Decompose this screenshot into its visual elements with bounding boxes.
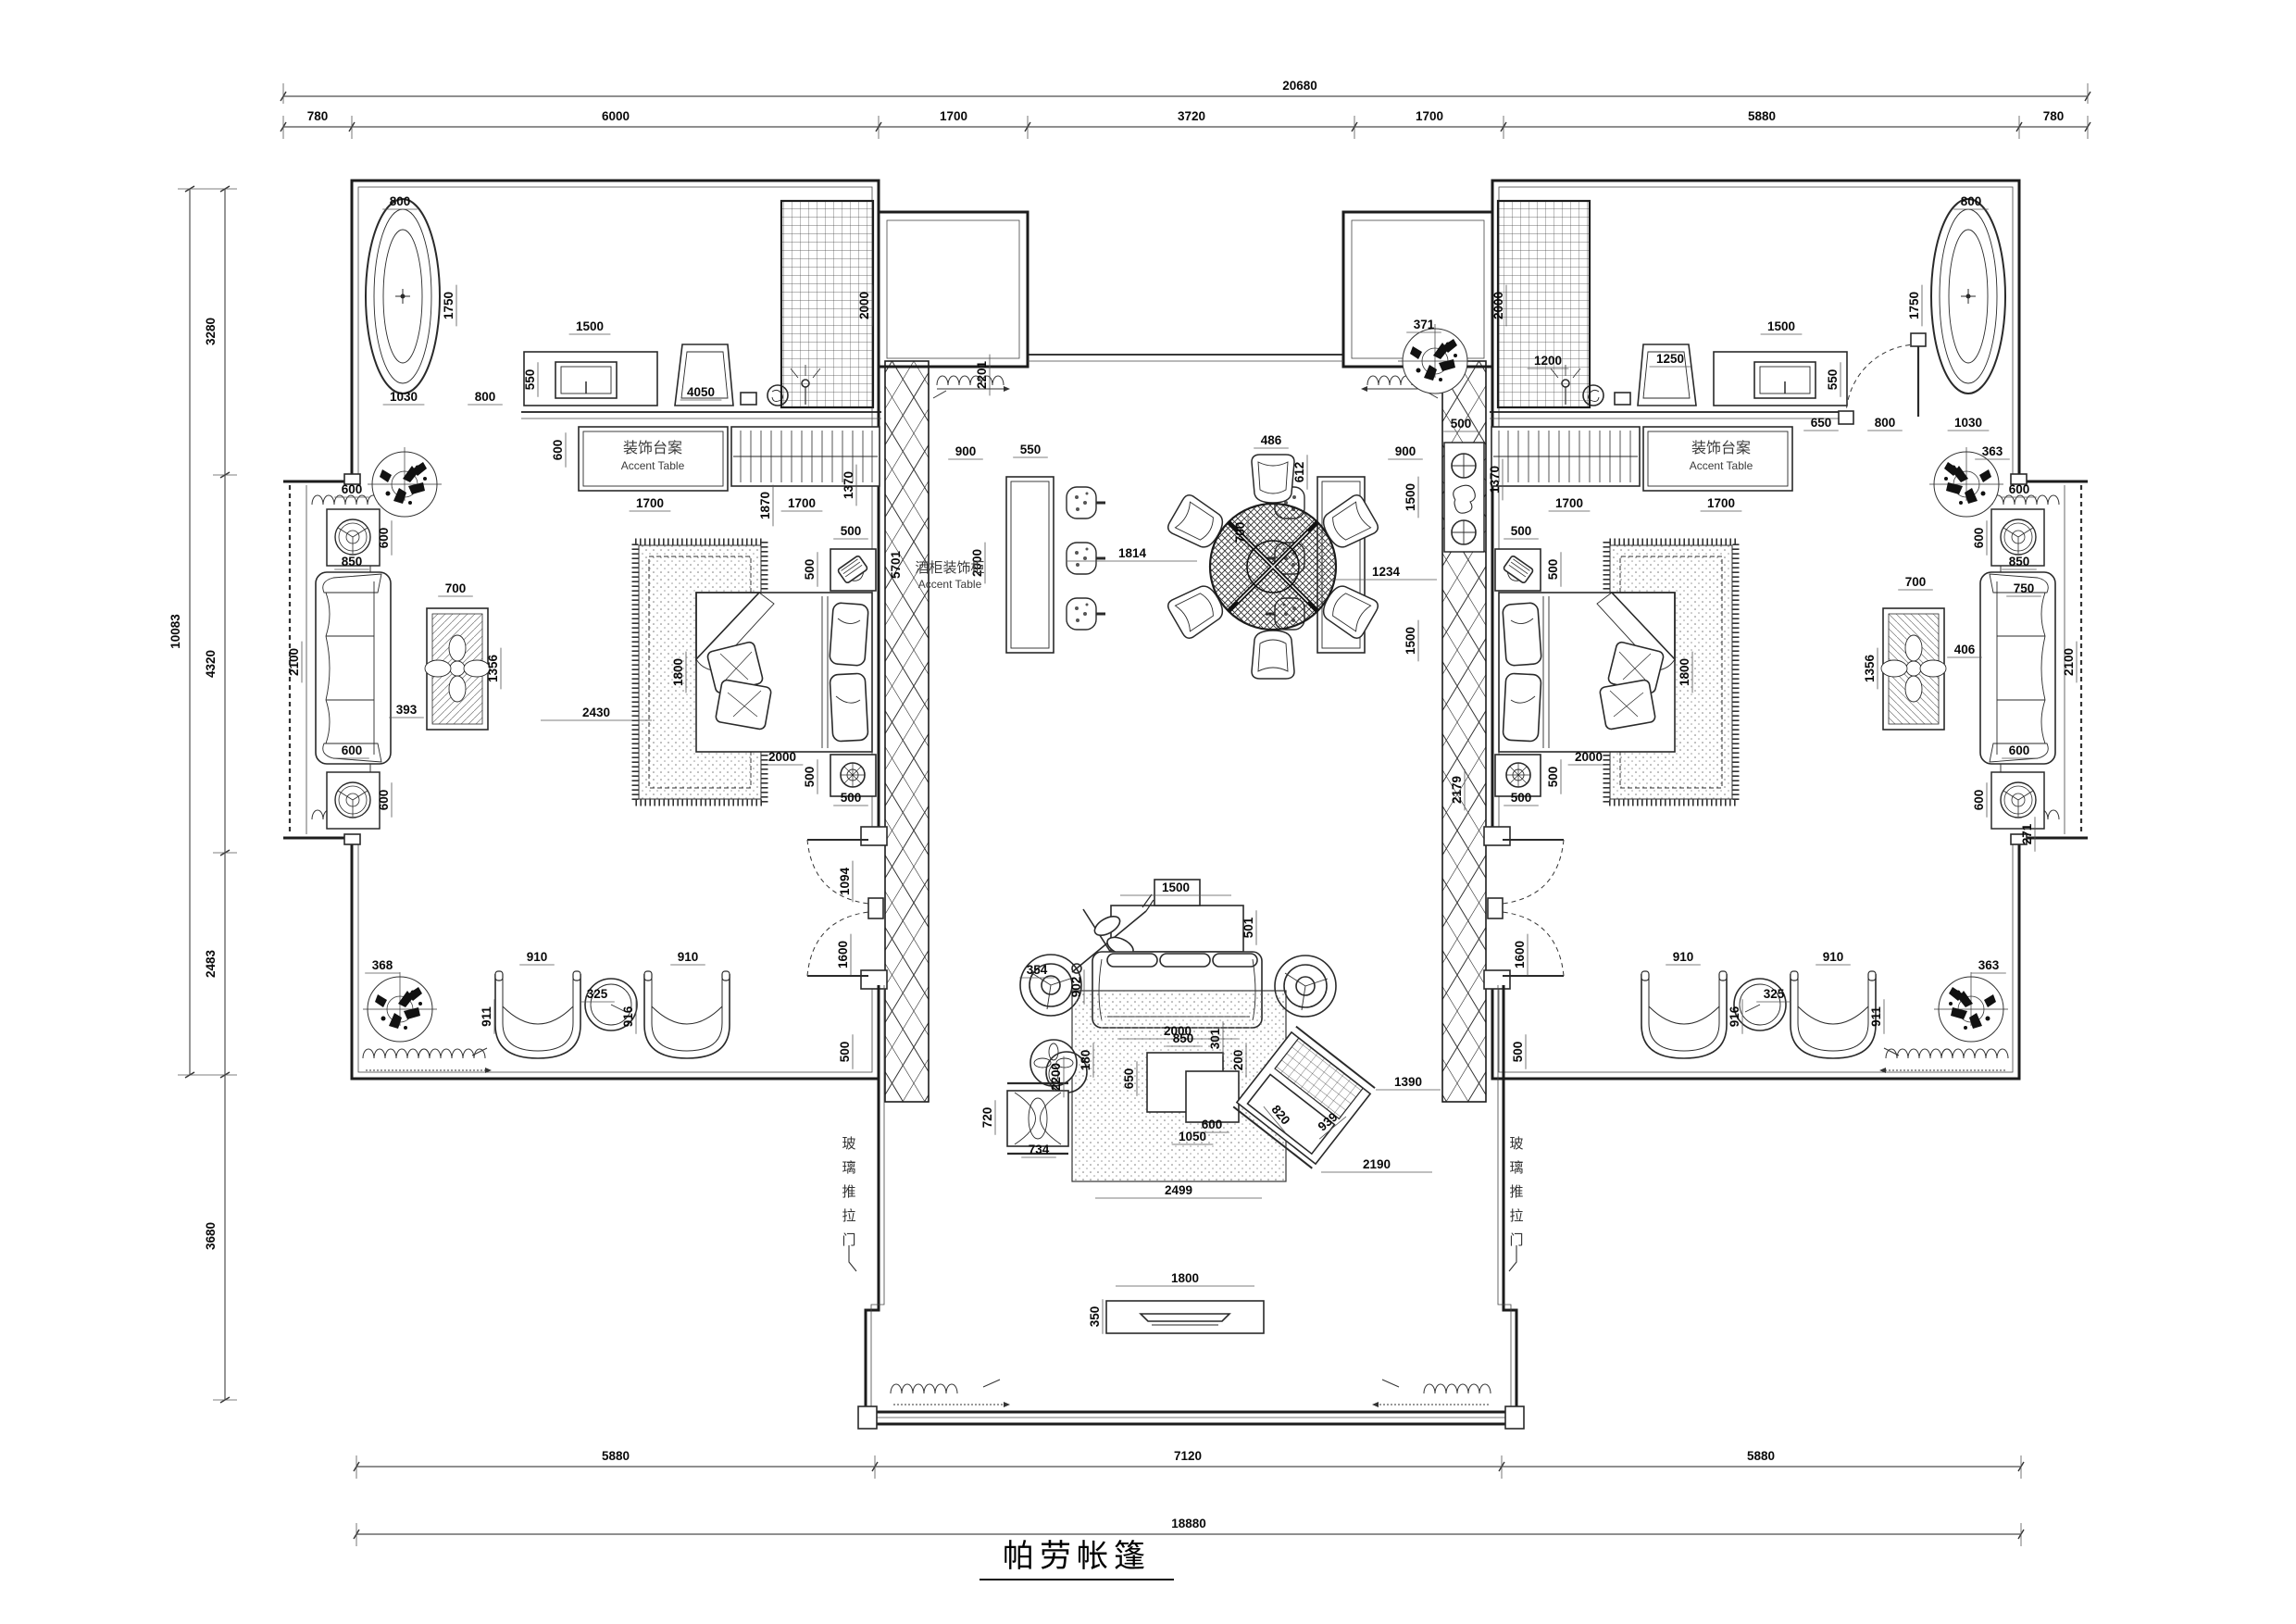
svg-text:368: 368 [372, 958, 393, 972]
bath-plant [368, 447, 442, 517]
svg-text:550: 550 [1826, 369, 1840, 391]
dim-label: 1700 [1701, 496, 1742, 511]
dim-label: 5880 [1747, 1449, 1775, 1463]
pillow [830, 603, 869, 666]
dim-label: 1700 [630, 496, 671, 511]
svg-text:1800: 1800 [1678, 658, 1691, 686]
svg-text:500: 500 [841, 791, 862, 805]
svg-text:406: 406 [1954, 643, 1976, 656]
svg-text:1800: 1800 [671, 658, 685, 686]
svg-text:600: 600 [2009, 743, 2030, 757]
dim-label: 5880 [1748, 109, 1776, 123]
dim-label: 3280 [204, 318, 218, 345]
dim-label: 1600 [836, 934, 851, 976]
svg-text:371: 371 [1414, 318, 1435, 331]
svg-text:1500: 1500 [1162, 881, 1190, 894]
svg-text:1200: 1200 [1534, 354, 1562, 368]
svg-text:500: 500 [1511, 524, 1532, 538]
svg-text:5880: 5880 [1748, 109, 1776, 123]
svg-text:500: 500 [838, 1042, 852, 1063]
svg-text:1700: 1700 [636, 496, 664, 510]
lower-plant [363, 972, 437, 1042]
svg-text:916: 916 [621, 1006, 635, 1027]
svg-text:393: 393 [396, 703, 418, 717]
svg-text:900: 900 [955, 444, 977, 458]
dim-label: 1500 [569, 319, 611, 334]
svg-text:550: 550 [523, 369, 537, 391]
dim-label: 2499 [1095, 1183, 1262, 1198]
svg-text:363: 363 [1978, 958, 2000, 972]
dim-label: 10083 [168, 614, 182, 649]
room-label: Accent Table [1690, 459, 1753, 472]
svg-text:1050: 1050 [1179, 1130, 1206, 1143]
svg-text:2100: 2100 [2062, 648, 2076, 676]
svg-text:500: 500 [1546, 767, 1560, 788]
svg-text:500: 500 [803, 559, 817, 581]
dim-label: 1500 [1404, 620, 1418, 662]
room-label: Accent Table [621, 459, 685, 472]
right-bath-door [1839, 333, 1926, 424]
svg-text:1030: 1030 [390, 390, 418, 404]
dim-label: 1750 [1907, 285, 1922, 327]
dim-label: 1030 [1948, 416, 1990, 431]
glass-sliding-door-label: 玻 [842, 1136, 855, 1152]
svg-text:2000: 2000 [1575, 750, 1603, 764]
glass-sliding-door-label: 璃 [842, 1160, 855, 1176]
svg-text:486: 486 [1261, 433, 1282, 447]
svg-text:700: 700 [1905, 575, 1927, 589]
svg-text:1600: 1600 [836, 941, 850, 968]
glass-door-arrow-right [1509, 1245, 1516, 1271]
dim-label: 500 [803, 759, 817, 794]
svg-text:3280: 3280 [204, 318, 218, 345]
side-table-bottom [327, 772, 380, 829]
dim-label: 20680 [1282, 79, 1317, 93]
hall-console [1106, 1301, 1264, 1333]
svg-text:2100: 2100 [287, 648, 301, 676]
svg-text:720: 720 [980, 1107, 994, 1129]
svg-text:354: 354 [1027, 963, 1048, 977]
dim-label: 18880 [1171, 1517, 1206, 1530]
svg-text:5880: 5880 [1747, 1449, 1775, 1463]
svg-text:2499: 2499 [1165, 1183, 1192, 1197]
dim-label: 1750 [442, 285, 456, 327]
dim-label: 1700 [940, 109, 967, 123]
hall-bottom-wall [866, 1412, 1516, 1424]
glass-sliding-door-label: 拉 [842, 1208, 855, 1224]
sink-symbol [1454, 485, 1476, 513]
dim-label: 2201 [975, 355, 990, 396]
svg-text:1700: 1700 [940, 109, 967, 123]
dim-label: 1390 [1376, 1075, 1441, 1090]
svg-text:550: 550 [1020, 443, 1042, 456]
dim-label: 1700 [1416, 109, 1443, 123]
svg-text:2179: 2179 [1450, 776, 1464, 804]
svg-text:911: 911 [480, 1006, 493, 1027]
svg-text:325: 325 [587, 987, 608, 1001]
svg-text:1700: 1700 [1555, 496, 1583, 510]
svg-text:301: 301 [1208, 1028, 1222, 1049]
svg-text:2190: 2190 [1363, 1157, 1391, 1171]
dim-label: 600 [1972, 520, 1987, 556]
dim-label: 500 [1546, 759, 1561, 794]
svg-text:5880: 5880 [602, 1449, 630, 1463]
svg-text:600: 600 [1972, 790, 1986, 811]
vanity-console [524, 352, 657, 406]
dim-label: 1700 [1549, 496, 1591, 511]
dim-label: 1500 [1761, 319, 1803, 334]
svg-text:2483: 2483 [204, 949, 218, 978]
svg-text:5701: 5701 [889, 550, 903, 579]
svg-text:1500: 1500 [576, 319, 604, 333]
dim-label: 1870 [758, 485, 773, 527]
lower-curtain [363, 1048, 491, 1070]
glass-sliding-door-label: 玻 [1509, 1136, 1523, 1152]
dim-label: 368 [365, 958, 400, 973]
dim-label: 1700 [781, 496, 823, 511]
glass-sliding-door-label: 门 [1509, 1232, 1523, 1248]
svg-text:1500: 1500 [1404, 627, 1417, 655]
dim-label: 2483 [204, 949, 218, 978]
bay-sofa [316, 572, 391, 764]
glass-sliding-door-label: 璃 [1509, 1160, 1523, 1176]
svg-text:750: 750 [2014, 581, 2035, 595]
dim-label: 486 [1254, 433, 1289, 448]
svg-text:600: 600 [551, 440, 565, 461]
svg-text:2000: 2000 [1491, 292, 1505, 319]
svg-text:700: 700 [445, 581, 467, 595]
svg-text:200: 200 [1231, 1050, 1245, 1071]
svg-text:1700: 1700 [788, 496, 816, 510]
dim-label: 2430 [541, 706, 652, 720]
dim-label: 600 [551, 432, 566, 468]
dim-label: 800 [468, 390, 503, 405]
dim-label: 363 [1971, 958, 2006, 973]
dim-label: 500 [838, 1034, 853, 1069]
svg-text:350: 350 [1088, 1306, 1102, 1328]
svg-text:734: 734 [1029, 1143, 1050, 1156]
dim-label: 406 [1947, 643, 1982, 657]
glass-sliding-door-label: 推 [1509, 1184, 1523, 1200]
svg-text:500: 500 [1511, 791, 1532, 805]
dim-label: 910 [519, 950, 555, 965]
svg-text:500: 500 [1511, 1042, 1525, 1063]
svg-text:850: 850 [2009, 555, 2030, 568]
dim-label: 350 [1088, 1299, 1103, 1334]
bed [696, 593, 872, 752]
dim-label: 5701 [889, 550, 903, 579]
svg-text:780: 780 [2043, 109, 2065, 123]
svg-text:500: 500 [803, 767, 817, 788]
svg-text:18880: 18880 [1171, 1517, 1206, 1530]
dim-label: 910 [1816, 950, 1851, 965]
dim-label: 1094 [838, 861, 853, 903]
glass-sliding-door-label: 门 [842, 1232, 855, 1248]
dim-label: 911 [480, 999, 494, 1034]
svg-text:2200: 2200 [1049, 1063, 1063, 1091]
dim-label: 720 [980, 1100, 995, 1135]
dim-label: 500 [803, 552, 817, 587]
svg-text:180: 180 [1079, 1050, 1092, 1071]
svg-text:1800: 1800 [1171, 1271, 1199, 1285]
dim-label: 1600 [1513, 934, 1528, 976]
svg-text:902: 902 [1069, 977, 1083, 998]
dim-label: 910 [670, 950, 705, 965]
dim-label: 1500 [1404, 477, 1418, 518]
svg-text:600: 600 [377, 528, 391, 549]
svg-text:612: 612 [1292, 462, 1306, 483]
svg-text:600: 600 [377, 790, 391, 811]
room-label: 装饰台案 [1691, 440, 1751, 456]
svg-text:910: 910 [1823, 950, 1844, 964]
svg-text:1356: 1356 [486, 654, 500, 682]
dim-label: 1356 [1863, 648, 1878, 690]
svg-text:1600: 1600 [1513, 941, 1527, 968]
svg-text:780: 780 [307, 109, 329, 123]
glass-sliding-door-label: 推 [842, 1184, 855, 1200]
dim-label: 910 [1666, 950, 1701, 965]
svg-text:600: 600 [2009, 482, 2030, 496]
svg-text:1700: 1700 [1416, 109, 1443, 123]
svg-text:900: 900 [1395, 444, 1416, 458]
dim-label: 780 [307, 109, 329, 123]
dim-label: 500 [1511, 1034, 1526, 1069]
svg-text:850: 850 [1173, 1031, 1194, 1045]
svg-text:650: 650 [1122, 1068, 1136, 1090]
svg-text:325: 325 [1764, 987, 1785, 1001]
svg-text:1750: 1750 [1907, 292, 1921, 319]
svg-text:1250: 1250 [1656, 352, 1684, 366]
svg-text:800: 800 [475, 390, 496, 404]
dim-label: 393 [389, 703, 424, 718]
dim-label: 780 [2043, 109, 2065, 123]
room-label: 酒柜装饰柜 [915, 560, 984, 576]
svg-text:501: 501 [1242, 917, 1255, 938]
svg-text:500: 500 [1451, 417, 1472, 431]
svg-text:271: 271 [2020, 823, 2034, 844]
room-label: Accent Table [918, 578, 982, 591]
wine-cabinet-column [885, 361, 929, 1102]
dim-label: 4320 [204, 650, 218, 678]
right-column-symbols [1444, 443, 1484, 552]
svg-text:4320: 4320 [204, 650, 218, 678]
svg-text:2000: 2000 [857, 292, 871, 319]
svg-text:1814: 1814 [1118, 546, 1147, 560]
svg-text:4050: 4050 [687, 385, 715, 399]
dim-label: 2100 [2062, 642, 2077, 683]
svg-text:7120: 7120 [1174, 1449, 1202, 1463]
dim-label: 700 [1898, 575, 1933, 590]
floor-plan-svg: 2068078060001700372017005880780100833280… [0, 0, 2296, 1624]
top-closet [879, 212, 1028, 367]
svg-text:916: 916 [1728, 1006, 1741, 1027]
svg-text:1370: 1370 [842, 471, 855, 499]
svg-text:10083: 10083 [168, 614, 182, 649]
svg-text:500: 500 [841, 524, 862, 538]
dim-label: 7120 [1174, 1449, 1202, 1463]
svg-text:1870: 1870 [758, 492, 772, 519]
dim-label: 2190 [1321, 1157, 1432, 1172]
bathtub [366, 199, 440, 394]
svg-text:800: 800 [390, 194, 411, 208]
svg-text:600: 600 [1972, 528, 1986, 549]
svg-text:911: 911 [1869, 1006, 1883, 1027]
pillow [830, 673, 868, 742]
glass-sliding-door-label: 拉 [1509, 1208, 1523, 1224]
svg-text:1356: 1356 [1863, 654, 1877, 682]
dim-label: 1500 [1120, 881, 1231, 895]
dim-label: 650 [1803, 416, 1839, 431]
svg-text:650: 650 [1811, 416, 1832, 430]
bar-counter [1006, 477, 1054, 653]
dim-label: 500 [1546, 552, 1561, 587]
dim-label: 5880 [602, 1449, 630, 1463]
dim-label: 1030 [383, 390, 425, 405]
svg-text:600: 600 [342, 482, 363, 496]
svg-text:910: 910 [678, 950, 699, 964]
dim-label: 500 [1504, 524, 1539, 539]
svg-text:2430: 2430 [582, 706, 610, 719]
svg-text:800: 800 [1961, 194, 1982, 208]
svg-text:363: 363 [1982, 444, 2003, 458]
svg-text:3720: 3720 [1178, 109, 1205, 123]
svg-text:2000: 2000 [768, 750, 796, 764]
dim-label: 3680 [204, 1222, 218, 1250]
bay-coffee-table [425, 608, 490, 730]
svg-text:1234: 1234 [1372, 565, 1401, 579]
svg-text:1750: 1750 [442, 292, 455, 319]
svg-text:800: 800 [1875, 416, 1896, 430]
svg-text:1700: 1700 [1707, 496, 1735, 510]
svg-text:500: 500 [1546, 559, 1560, 581]
room-label: 装饰台案 [623, 440, 682, 456]
dim-label: 900 [948, 444, 983, 459]
dim-label: 800 [1867, 416, 1903, 431]
svg-text:3680: 3680 [204, 1222, 218, 1250]
dim-label: 6000 [602, 109, 630, 123]
svg-text:20680: 20680 [1282, 79, 1317, 93]
drawing-title: 帕劳帐篷 [1003, 1539, 1151, 1574]
glass-door-arrow-left [849, 1245, 856, 1271]
svg-text:1390: 1390 [1394, 1075, 1422, 1089]
svg-text:600: 600 [342, 743, 363, 757]
svg-text:700: 700 [1233, 522, 1247, 543]
dim-label: 500 [833, 524, 868, 539]
svg-text:1500: 1500 [1767, 319, 1795, 333]
dim-label: 550 [1013, 443, 1048, 457]
svg-text:1030: 1030 [1954, 416, 1982, 430]
central-top-wall [1028, 355, 1343, 361]
svg-text:850: 850 [342, 555, 363, 568]
svg-text:1094: 1094 [838, 867, 852, 895]
counter-item [741, 393, 756, 405]
dim-label: 1800 [1116, 1271, 1254, 1286]
svg-text:910: 910 [527, 950, 548, 964]
svg-text:1370: 1370 [1488, 466, 1502, 493]
hall-corner-curtain-right [1373, 1380, 1491, 1405]
nightstand-top [830, 549, 876, 591]
dim-label: 900 [1388, 444, 1423, 459]
dim-label: 700 [438, 581, 473, 596]
hall-corner-curtain-left [891, 1380, 1009, 1405]
svg-text:6000: 6000 [602, 109, 630, 123]
svg-text:910: 910 [1673, 950, 1694, 964]
dim-label: 600 [1972, 782, 1987, 818]
dim-label: 3720 [1178, 109, 1205, 123]
closet-curtain [933, 376, 1009, 398]
slatted-cabinet [731, 427, 880, 486]
svg-text:1500: 1500 [1404, 483, 1417, 511]
svg-text:2201: 2201 [975, 360, 989, 389]
